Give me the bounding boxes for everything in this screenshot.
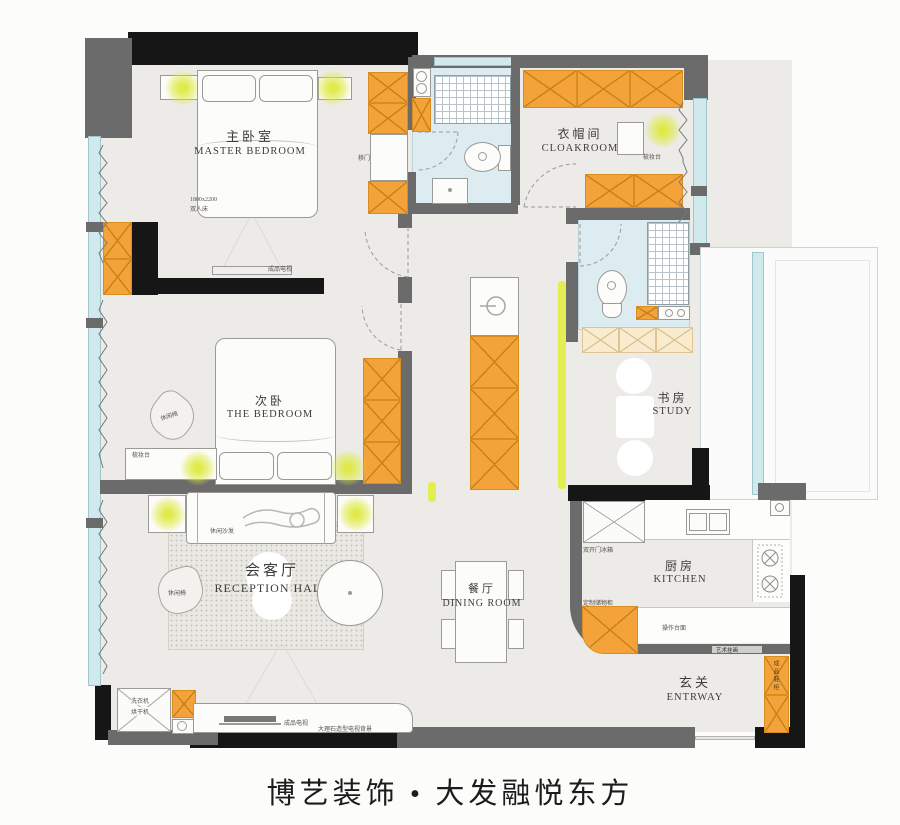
master-bedroom-label-cn: 主卧室 [195, 130, 305, 145]
entryway-label-cn: 玄关 [650, 676, 740, 691]
wall-segment [408, 172, 416, 203]
hall-tv [224, 716, 276, 722]
wall-segment [397, 727, 695, 748]
wall-segment [684, 55, 708, 100]
wardrobe-cabinet [634, 174, 683, 208]
fridge [583, 501, 645, 543]
master-bedroom-label-en: MASTER BEDROOM [180, 146, 320, 158]
entry-door-line [695, 736, 755, 740]
sofa-armrest [324, 492, 336, 544]
study-stool [616, 358, 652, 394]
sink [658, 306, 690, 320]
bath-cabinet [412, 98, 431, 132]
study-label-cn: 书房 [630, 392, 715, 406]
door-arc [578, 222, 623, 268]
wardrobe-cabinet [368, 181, 408, 214]
hall-cabinet [470, 439, 519, 490]
wardrobe-cabinet [368, 72, 408, 103]
sink-drain [448, 188, 452, 192]
bedroom-dresser-label: 梳妆台 [132, 450, 150, 459]
wall-segment [85, 38, 132, 138]
lamp-glow [645, 112, 681, 148]
bed-size-label: 1800x2200 [190, 197, 217, 203]
sink-basin [689, 513, 707, 531]
light-strip [428, 482, 436, 502]
second-bedroom-label-cn: 次卧 [215, 395, 325, 409]
sink-drain [677, 309, 685, 317]
wardrobe-cabinet [577, 70, 630, 108]
fridge-label: 双开门冰箱 [583, 545, 613, 554]
wardrobe-cabinet [523, 70, 577, 108]
art-frame-label: 艺术挂画 [716, 646, 738, 654]
page-title: 博艺装饰 • 大发融悦东方 [0, 770, 900, 812]
hall-tv-label: 成品电视 [284, 718, 308, 727]
pillow [202, 75, 256, 102]
table-center-dot [348, 591, 352, 595]
kitchen-label-en: KITCHEN [630, 574, 730, 586]
study-label-en: STUDY [630, 406, 715, 418]
door-arc [417, 131, 460, 172]
bed-type-label: 双人床 [190, 204, 208, 213]
countertop-label: 操作台面 [662, 623, 686, 632]
dining-label-cn: 餐厅 [430, 583, 534, 596]
kitchen-label-cn: 厨房 [630, 560, 730, 574]
sofa-armrest [186, 492, 198, 544]
wall-segment [132, 278, 324, 294]
floor-plan: 1800x2200 双人床 主卧室 MASTER BEDROOM 移门 成品电视… [0, 0, 900, 825]
toilet-base [602, 303, 622, 318]
dryer-label: 烘干机 [131, 707, 149, 716]
wall-segment [568, 485, 710, 501]
dining-table [455, 561, 507, 663]
sink-basin [709, 513, 727, 531]
washer-drum-icon [416, 71, 427, 82]
person-figure [235, 496, 325, 538]
curtain-icon [678, 102, 688, 242]
wall-segment [570, 501, 582, 603]
hall-cabinet [470, 336, 519, 388]
dining-chair [508, 619, 524, 649]
window [434, 57, 512, 66]
lamp-glow [180, 450, 216, 486]
master-tv-label: 成品电视 [268, 264, 292, 273]
dining-label-en: DINING ROOM [426, 598, 538, 610]
wardrobe-cabinet [630, 70, 683, 108]
door-arc [363, 225, 409, 279]
sliding-door-label: 移门 [358, 153, 370, 162]
wardrobe-cabinet [363, 358, 401, 400]
wall-segment [577, 208, 690, 220]
toilet-flush [478, 152, 487, 161]
hall-chair-label: 休闲椅 [168, 588, 186, 597]
wall-segment [566, 208, 578, 224]
utility-drum-icon [177, 721, 187, 731]
entryway-label-en: ENTRWAY [650, 692, 740, 704]
second-bedroom-label-en: THE BEDROOM [200, 409, 340, 421]
wall-segment [405, 203, 518, 214]
sink-drain [665, 309, 673, 317]
wardrobe-cabinet [368, 103, 408, 134]
wall-segment [691, 186, 707, 196]
study-cabinet [619, 327, 656, 353]
light-strip [558, 281, 566, 489]
door-arc [360, 302, 403, 352]
wall-segment [620, 644, 790, 654]
bay-window-frame [775, 260, 870, 492]
wall-segment [790, 575, 805, 735]
stove-burners-icon [757, 544, 783, 598]
shower-area [434, 75, 511, 124]
lamp-glow [338, 496, 374, 532]
cloakroom-dresser-label: 梳妆台 [643, 152, 661, 161]
window [693, 98, 707, 245]
cloakroom-label-en: CLOAKROOM [518, 143, 642, 155]
wall-segment [566, 262, 578, 342]
study-cabinet [656, 327, 693, 353]
tv-wall-label: 大理石造型电视背景 [318, 724, 372, 733]
wardrobe-shelf [370, 134, 408, 181]
cloakroom-label-cn: 衣帽间 [525, 128, 635, 142]
kitchen-cabinet [582, 606, 638, 654]
sofa-label: 休闲沙发 [210, 526, 234, 535]
power-symbol-icon [480, 294, 508, 318]
lower-counter [620, 607, 790, 643]
lamp-glow [150, 496, 186, 532]
lamp-glow [315, 70, 351, 106]
reception-label-cn: 会客厅 [212, 563, 332, 580]
washer-drum-icon [416, 83, 427, 94]
study-stool [617, 440, 653, 476]
pillow [277, 452, 332, 480]
bath-cabinet [636, 306, 658, 320]
wall-segment [398, 277, 412, 303]
hall-cabinet [470, 388, 519, 439]
pillow [219, 452, 274, 480]
lamp-glow [330, 450, 366, 486]
curtain-icon [98, 145, 108, 265]
lamp-glow [165, 70, 201, 106]
curtain-icon [98, 500, 108, 675]
curtain-icon [98, 300, 108, 470]
bay-window [752, 252, 764, 495]
shower-area [647, 222, 689, 305]
fixture-icon [775, 503, 784, 512]
study-cabinet [582, 327, 619, 353]
shoe-cabinet-label: 成品鞋柜 [771, 660, 780, 730]
wall-segment [758, 483, 806, 500]
wardrobe-cabinet [363, 400, 401, 442]
toilet-flush [607, 281, 616, 290]
pillow [259, 75, 313, 102]
wardrobe-cabinet [585, 174, 634, 208]
wall-segment [511, 57, 520, 205]
wardrobe-cabinet [363, 442, 401, 484]
blanket-line [216, 428, 335, 442]
tv-stand [219, 723, 281, 725]
washer-label: 洗衣机 [131, 696, 149, 705]
wall-segment [128, 32, 418, 65]
door-arc [522, 162, 578, 209]
